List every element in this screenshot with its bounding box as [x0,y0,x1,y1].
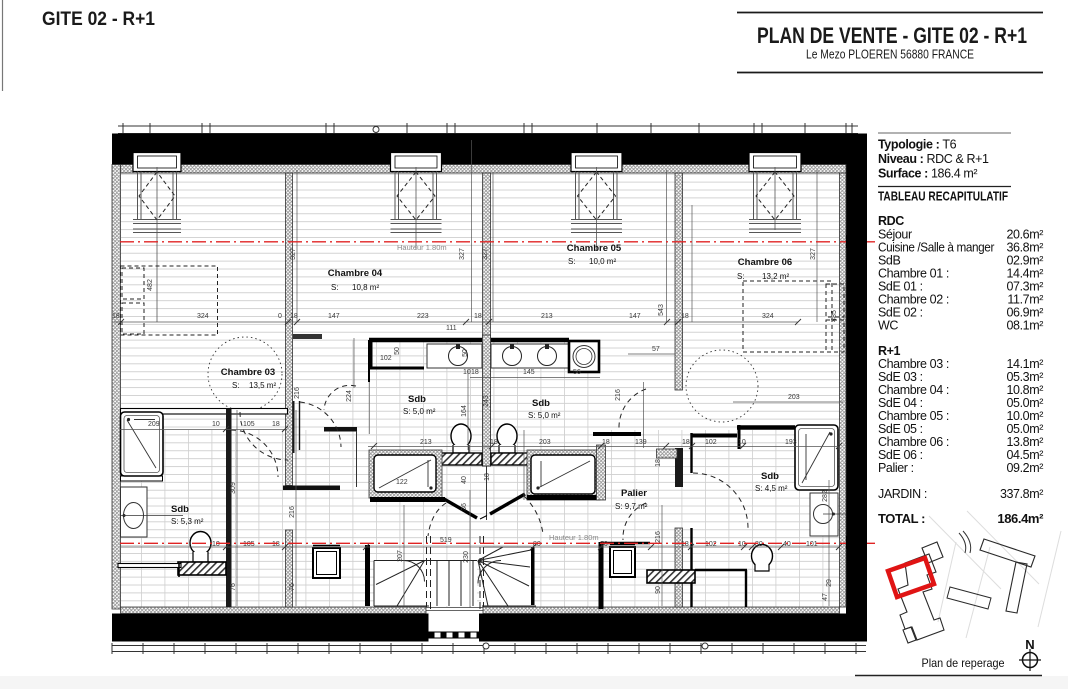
svg-text:18: 18 [681,313,689,320]
svg-text:327: 327 [459,248,466,260]
svg-text:Hauteur 1.80m: Hauteur 1.80m [549,533,599,542]
svg-text:R+1: R+1 [878,344,901,358]
svg-text:Palier: Palier [621,488,647,499]
svg-text:36.8m²: 36.8m² [1006,241,1043,255]
svg-text:SdE 05 :: SdE 05 : [878,422,923,436]
svg-text:05.0m²: 05.0m² [1006,396,1043,410]
svg-text:10: 10 [212,421,220,428]
svg-text:29: 29 [826,579,833,587]
svg-text:Cuisine /Salle à manger: Cuisine /Salle à manger [878,241,994,255]
svg-text:216: 216 [294,387,301,399]
svg-text:324: 324 [197,313,209,320]
svg-text:S: 9,7 m²: S: 9,7 m² [615,502,648,511]
svg-text:18: 18 [272,541,280,548]
svg-text:193: 193 [785,439,797,446]
svg-text:S:: S: [331,283,339,292]
svg-text:05.3m²: 05.3m² [1006,370,1043,384]
svg-text:216: 216 [655,531,662,543]
svg-text:S: 5,3 m²: S: 5,3 m² [171,517,204,526]
svg-text:18: 18 [471,369,479,376]
svg-text:203: 203 [788,394,800,401]
svg-text:18: 18 [682,439,690,446]
svg-text:10.0m²: 10.0m² [1006,409,1043,423]
svg-text:18: 18 [474,313,482,320]
svg-text:50: 50 [462,349,469,357]
svg-text:RDC: RDC [878,214,904,228]
svg-text:Plan de reperage: Plan de reperage [922,656,1005,670]
svg-text:Chambre 03: Chambre 03 [221,367,275,378]
svg-text:SdE 01 :: SdE 01 : [878,280,923,294]
svg-text:10,8 m²: 10,8 m² [352,283,379,292]
svg-text:101: 101 [806,541,818,548]
svg-text:13,2 m²: 13,2 m² [762,272,789,281]
svg-text:309: 309 [230,482,237,494]
svg-text:111: 111 [446,325,457,332]
svg-text:327: 327 [290,248,297,260]
svg-text:Chambre 04: Chambre 04 [328,268,383,279]
svg-text:02.9m²: 02.9m² [1006,254,1043,268]
svg-text:282: 282 [822,490,829,502]
svg-text:Le Mezo PLOEREN 56880 FRANCE: Le Mezo PLOEREN 56880 FRANCE [806,48,974,62]
svg-text:122: 122 [396,479,408,486]
svg-text:224: 224 [346,390,353,402]
svg-text:18: 18 [484,473,491,481]
svg-text:SdB: SdB [878,254,900,268]
svg-text:Hauteur 1.80m: Hauteur 1.80m [397,243,447,252]
svg-text:230: 230 [463,551,470,563]
svg-text:57: 57 [652,346,660,353]
svg-text:13,5 m²: 13,5 m² [249,381,276,390]
svg-text:05.0m²: 05.0m² [1006,422,1043,436]
svg-text:216: 216 [615,389,622,401]
svg-text:10: 10 [738,439,746,446]
svg-text:543: 543 [658,304,665,316]
svg-text:10: 10 [738,541,746,548]
svg-text:Chambre 06 :: Chambre 06 : [878,435,949,449]
svg-text:11.7m²: 11.7m² [1007,293,1043,307]
svg-text:90: 90 [655,586,662,594]
svg-text:Chambre 06: Chambre 06 [738,257,792,268]
svg-text:327: 327 [482,248,489,260]
svg-text:Typologie : T6: Typologie : T6 [878,138,957,152]
svg-text:GITE 02 - R+1: GITE 02 - R+1 [42,9,155,30]
svg-text:13.8m²: 13.8m² [1006,435,1043,449]
svg-text:213: 213 [541,313,553,320]
svg-text:Niveau : RDC & R+1: Niveau : RDC & R+1 [878,152,989,166]
svg-text:10: 10 [212,541,220,548]
svg-text:18: 18 [681,541,689,548]
svg-text:203: 203 [539,439,551,446]
svg-text:147: 147 [328,313,340,320]
svg-text:337.8m²: 337.8m² [1000,487,1043,501]
svg-text:18: 18 [290,313,298,320]
svg-text:56: 56 [573,369,581,376]
svg-text:14.4m²: 14.4m² [1006,267,1043,281]
svg-text:102: 102 [705,541,717,548]
svg-text:07.3m²: 07.3m² [1006,280,1043,294]
svg-text:Sdb: Sdb [761,471,779,482]
svg-text:SdE 06 :: SdE 06 : [878,448,923,462]
svg-text:S: 5,0 m²: S: 5,0 m² [528,411,561,420]
svg-text:S:: S: [232,381,240,390]
svg-text:JARDIN :: JARDIN : [878,487,927,501]
svg-text:76: 76 [289,583,296,591]
svg-text:Chambre 05: Chambre 05 [567,243,622,254]
svg-text:105: 105 [243,421,255,428]
svg-text:08.1m²: 08.1m² [1006,319,1043,333]
svg-text:S: 5,0 m²: S: 5,0 m² [403,407,436,416]
svg-text:10.8m²: 10.8m² [1006,383,1043,397]
svg-text:0: 0 [278,313,282,320]
svg-text:04.5m²: 04.5m² [1006,448,1043,462]
svg-text:10,0 m²: 10,0 m² [589,257,616,266]
svg-text:186.4m²: 186.4m² [997,511,1044,526]
svg-text:SdE 03 :: SdE 03 : [878,370,923,384]
svg-text:S:: S: [737,272,745,281]
svg-text:Chambre 01 :: Chambre 01 : [878,267,949,281]
svg-text:327: 327 [810,248,817,260]
svg-text:40: 40 [461,476,468,484]
svg-text:PLAN DE VENTE - GITE 02 - R+1: PLAN DE VENTE - GITE 02 - R+1 [757,23,1027,48]
svg-text:209: 209 [148,421,160,428]
svg-text:Sdb: Sdb [408,394,426,405]
svg-text:47: 47 [822,593,829,601]
svg-text:SdE 02 :: SdE 02 : [878,306,923,320]
svg-text:S: 4,5 m²: S: 4,5 m² [755,484,788,493]
svg-text:Surface : 186.4 m²: Surface : 186.4 m² [878,167,977,181]
svg-text:Sdb: Sdb [532,398,550,409]
svg-text:20.6m²: 20.6m² [1006,228,1043,242]
svg-text:80: 80 [533,541,541,548]
svg-text:18: 18 [655,459,662,467]
svg-text:36: 36 [461,503,468,511]
svg-text:76: 76 [230,583,237,591]
svg-text:207: 207 [397,550,404,562]
svg-text:Chambre 05 :: Chambre 05 : [878,409,949,423]
svg-text:09.2m²: 09.2m² [1006,461,1043,475]
svg-text:216: 216 [289,506,296,518]
svg-text:18: 18 [602,439,610,446]
svg-text:WC: WC [878,319,898,333]
svg-text:Sdb: Sdb [171,504,189,515]
svg-text:485: 485 [831,310,838,322]
svg-text:40: 40 [783,541,791,548]
svg-text:Palier :: Palier : [878,461,914,475]
svg-text:18: 18 [272,421,280,428]
svg-text:SdE 04 :: SdE 04 : [878,396,923,410]
svg-text:S:: S: [568,257,576,266]
svg-text:18: 18 [490,439,498,446]
svg-text:145: 145 [523,369,535,376]
svg-text:Chambre 03 :: Chambre 03 : [878,357,949,371]
svg-text:Chambre 02 :: Chambre 02 : [878,293,949,307]
svg-text:18: 18 [112,313,120,320]
svg-text:102: 102 [380,355,392,362]
svg-text:102: 102 [705,439,717,446]
svg-text:139: 139 [635,439,647,446]
svg-text:243: 243 [483,395,490,407]
svg-text:Chambre 04 :: Chambre 04 : [878,383,949,397]
svg-text:164: 164 [461,405,468,417]
svg-text:80: 80 [755,541,763,548]
svg-text:14.1m²: 14.1m² [1006,357,1043,371]
svg-text:324: 324 [762,313,774,320]
svg-text:TOTAL :: TOTAL : [878,511,925,526]
svg-text:223: 223 [417,313,429,320]
svg-text:10: 10 [463,369,471,376]
svg-text:147: 147 [629,313,641,320]
svg-text:06.9m²: 06.9m² [1006,306,1043,320]
svg-text:Séjour: Séjour [878,228,912,242]
svg-text:213: 213 [420,439,432,446]
svg-text:105: 105 [243,541,255,548]
svg-text:TABLEAU RECAPITULATIF: TABLEAU RECAPITULATIF [878,189,1008,204]
svg-text:482: 482 [147,279,154,291]
svg-text:50: 50 [394,347,401,355]
